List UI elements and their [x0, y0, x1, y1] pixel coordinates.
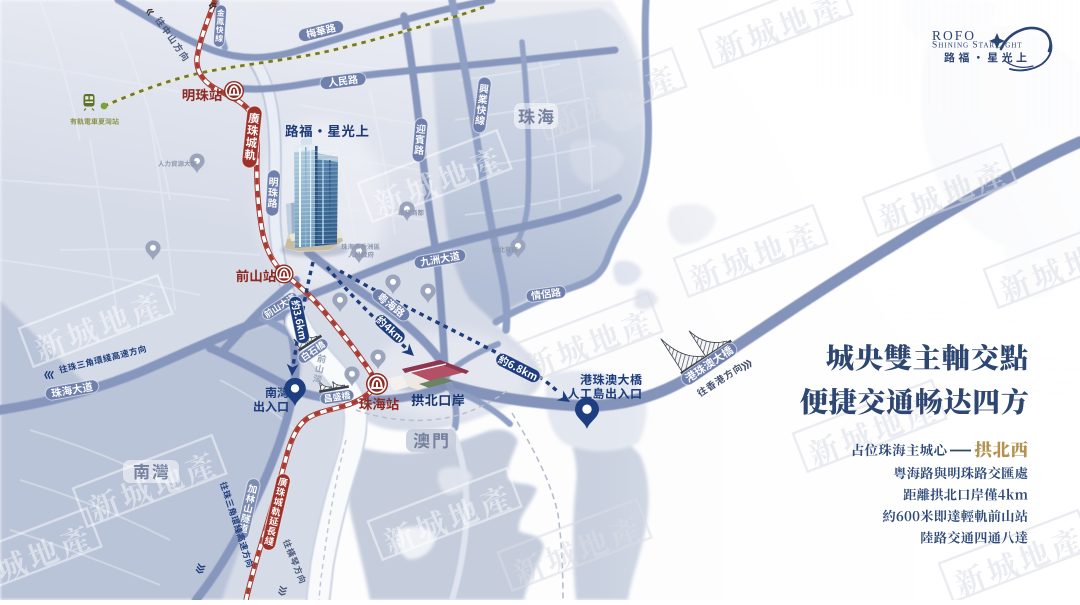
svg-text:SHINING STARLIGHT: SHINING STARLIGHT: [932, 41, 1023, 51]
